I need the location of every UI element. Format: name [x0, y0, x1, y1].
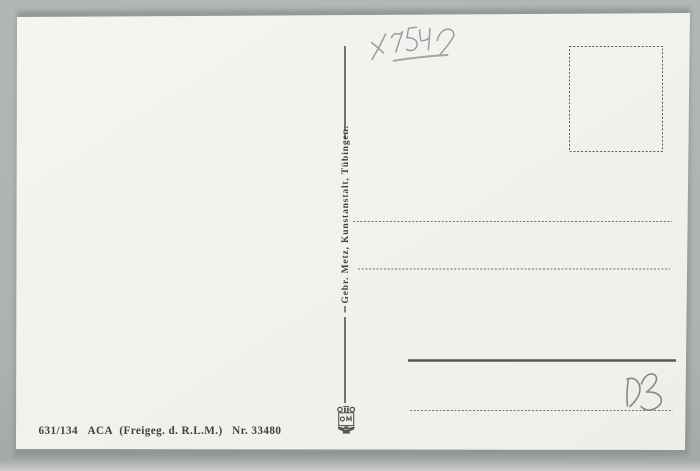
svg-text:631/134 ACA (Freigeg. d. R.: 631/134 ACA (Freigeg. d. R.L.M.) Nr. 334… — [39, 425, 282, 437]
svg-text:Gebr. Metz, Kunstanstalt, Tübi: Gebr. Metz, Kunstanstalt, Tübingen. — [341, 125, 351, 303]
